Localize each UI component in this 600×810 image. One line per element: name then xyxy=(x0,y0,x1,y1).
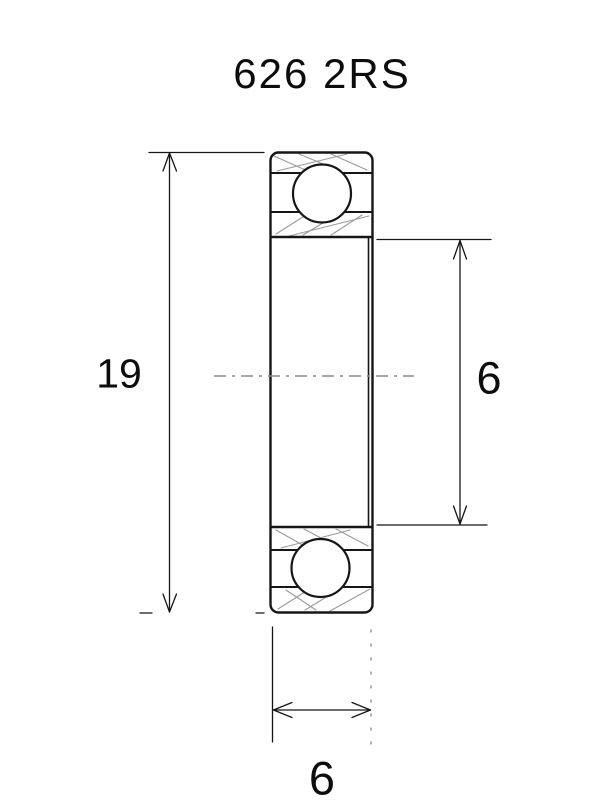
dim-outer-diameter xyxy=(140,153,264,614)
dim-bore-diameter xyxy=(377,240,491,526)
dim-outer-diameter-label: 19 xyxy=(96,354,142,395)
dim-bore-diameter-label: 6 xyxy=(476,356,501,401)
bottom-ball xyxy=(292,539,350,597)
dim-width xyxy=(273,627,372,746)
page-title: 626 2RS xyxy=(233,53,410,95)
bearing-technical-drawing: 626 2RS 19 6 6 xyxy=(0,0,600,810)
dim-width-label: 6 xyxy=(309,755,335,802)
top-ball xyxy=(293,165,351,223)
drawing-canvas xyxy=(0,0,600,810)
ring-race-lines xyxy=(271,173,372,587)
